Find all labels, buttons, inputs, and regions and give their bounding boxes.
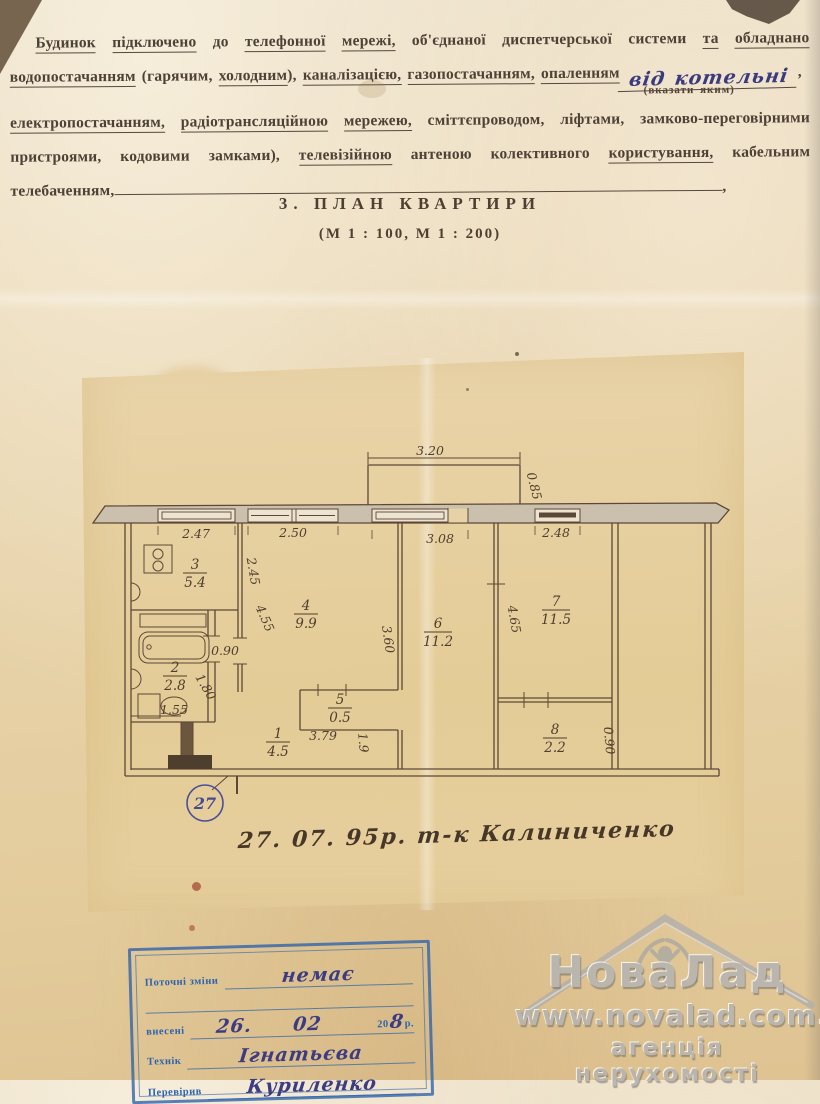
floor-plan-svg: 3.20 0.85 2.47 2.50 3.08 2.48 2.45 4.55 … <box>78 442 748 822</box>
room-label-6: 6 11.2 <box>423 616 453 650</box>
svg-text:27: 27 <box>193 794 216 813</box>
svg-text:4.65: 4.65 <box>504 603 524 634</box>
typed-text: електропостачанням, <box>10 114 165 134</box>
svg-text:3.79: 3.79 <box>309 728 337 743</box>
dimension-ticks <box>158 526 580 539</box>
scanned-apartment-plan-document: { "intro": { "lines": [ {"cls":"just ind… <box>0 0 820 1080</box>
typed-text <box>719 30 735 47</box>
handwritten-heating-value: від котельні <box>618 65 800 92</box>
typed-text <box>165 114 181 131</box>
balcony-outline <box>368 465 520 508</box>
typed-text <box>326 32 342 49</box>
svg-text:9.9: 9.9 <box>295 616 317 632</box>
svg-text:2.2: 2.2 <box>543 740 565 756</box>
svg-text:4.5: 4.5 <box>266 744 288 760</box>
typed-text: мережі, <box>342 32 396 51</box>
shelf-icon <box>140 614 206 627</box>
typed-text: підключено <box>112 33 196 53</box>
typed-text: (гарячим, <box>136 67 219 85</box>
watermark-url: www.novalad.com.ua <box>515 999 820 1032</box>
bathtub-icon <box>139 632 209 663</box>
svg-text:2.48: 2.48 <box>541 525 570 540</box>
section-title: 3. ПЛАН КВАРТИРИ <box>0 194 820 214</box>
typed-text: радіотрансляційною <box>181 113 329 133</box>
typed-text: телефонної <box>245 33 326 53</box>
svg-text:0.5: 0.5 <box>329 710 350 726</box>
typed-text: обладнано <box>735 29 810 49</box>
blank-rule <box>114 178 722 195</box>
plan-dimensions: 3.20 0.85 2.47 2.50 3.08 2.48 2.45 4.55 … <box>160 443 618 755</box>
room-label-2: 2 2.8 <box>163 660 187 694</box>
stamp-label-entered: внесені <box>146 1026 185 1041</box>
typed-text: телевізійною <box>299 146 392 166</box>
svg-text:2.47: 2.47 <box>181 526 210 541</box>
kitchen-fixtures <box>131 545 172 601</box>
typed-text: Будинок <box>35 34 96 53</box>
svg-text:8: 8 <box>551 722 560 738</box>
typed-text <box>401 66 407 83</box>
red-stain-dot <box>189 925 195 931</box>
svg-text:11.2: 11.2 <box>423 634 453 650</box>
typed-text: об'єднаної диспетчерської системи <box>396 30 703 49</box>
svg-text:5.4: 5.4 <box>184 575 205 591</box>
typed-text: сміттєпроводом, ліфтами, замково-перегов… <box>412 109 810 129</box>
svg-text:5: 5 <box>336 692 345 708</box>
typed-text: користування, <box>609 144 714 164</box>
stamp-value-verified: Куриленко <box>246 1073 378 1098</box>
svg-text:3.60: 3.60 <box>379 625 398 655</box>
svg-text:3: 3 <box>191 557 200 573</box>
scale-note: (М 1 : 100, М 1 : 200) <box>0 226 820 243</box>
typed-text: опаленням <box>541 65 620 85</box>
typed-text: до <box>196 33 245 50</box>
plan-walls <box>93 452 729 794</box>
intro-line: пристроями, кодовими замками), телевізій… <box>10 135 810 175</box>
stamp-value-technician: Ігнатьєва <box>238 1043 364 1068</box>
stamp-value-current-changes: немає <box>281 964 356 987</box>
room-label-7: 7 11.5 <box>541 594 571 628</box>
bti-stamp: Поточні зміни немає внесені 26. 02 20 8 … <box>128 940 434 1104</box>
stamp-value-day: 26. <box>215 1016 253 1038</box>
room-label-8: 8 2.2 <box>543 722 567 756</box>
ink-speck <box>515 352 519 356</box>
stamp-year-suffix: р. <box>404 1018 414 1032</box>
typed-text: кабельним <box>713 143 810 161</box>
sink-icon <box>131 583 140 601</box>
typed-text: мережею, <box>344 112 412 131</box>
ink-speck <box>466 388 469 391</box>
fold-crease-horizontal <box>0 288 820 310</box>
watermark-brand: НоваЛад <box>515 947 820 998</box>
intro-line: водопостачанням (гарячим, холодним), кан… <box>10 55 810 95</box>
svg-text:11.5: 11.5 <box>541 612 571 628</box>
watermark-tagline: агенція нерухомості <box>515 1035 820 1087</box>
stamp-year-hand: 8 <box>387 1012 405 1034</box>
room-label-3: 3 5.4 <box>183 557 207 591</box>
stamp-label-current-changes: Поточні зміни <box>145 976 219 992</box>
red-stain-dot <box>192 882 201 891</box>
stamp-label-technician: Технік <box>147 1056 182 1071</box>
svg-text:2.45: 2.45 <box>243 555 263 586</box>
typed-text: водопостачанням <box>10 68 136 88</box>
intro-line: електропостачанням, радіотрансляційною м… <box>10 101 810 141</box>
typed-text <box>96 34 112 51</box>
svg-text:7: 7 <box>552 594 561 610</box>
stamp-line: Куриленко <box>208 1072 417 1100</box>
svg-text:0.90: 0.90 <box>211 643 239 658</box>
svg-text:1.55: 1.55 <box>160 702 188 717</box>
svg-text:4.55: 4.55 <box>252 601 277 633</box>
typed-text: газопостачанням, <box>407 65 535 85</box>
balcony-door-gap <box>448 509 468 523</box>
typed-text: антеною колективного <box>392 145 609 164</box>
washbasin-icon <box>131 669 141 689</box>
stamp-value-month: 02 <box>291 1014 322 1036</box>
room-label-5: 5 0.5 <box>328 692 352 726</box>
stamp-label-verified: Перевірив <box>148 1086 202 1102</box>
intro-line: Будинок підключено до телефонної мережі,… <box>9 21 809 61</box>
entrance-step <box>168 755 212 769</box>
svg-text:6: 6 <box>434 616 443 632</box>
svg-text:4: 4 <box>301 598 311 614</box>
svg-text:2.8: 2.8 <box>163 678 186 694</box>
room-label-4: 4 9.9 <box>294 598 318 632</box>
typed-text: ), <box>287 67 303 84</box>
paper-smudge <box>358 80 386 98</box>
svg-text:0.90: 0.90 <box>601 726 618 755</box>
svg-text:3.20: 3.20 <box>416 443 444 458</box>
svg-text:0.85: 0.85 <box>524 471 545 502</box>
typed-text: каналізацією, <box>303 66 402 86</box>
svg-text:1.9: 1.9 <box>355 732 372 753</box>
typed-text: , <box>722 178 726 195</box>
toilet-tank-icon <box>138 694 160 718</box>
typed-text <box>328 112 344 129</box>
svg-text:2.50: 2.50 <box>278 525 307 540</box>
typed-text: пристроями, кодовими замками), <box>10 147 299 166</box>
intro-text: Будинок підключено до телефонної мережі,… <box>9 21 810 209</box>
typed-text: холодним <box>219 67 288 86</box>
apartment-number-circle: 27 <box>187 785 223 821</box>
agency-watermark: НоваЛад www.novalad.com.ua агенція нерух… <box>515 903 820 1080</box>
room-label-1: 1 4.5 <box>266 726 290 760</box>
svg-text:1: 1 <box>274 726 283 742</box>
stamp-inner-border: Поточні зміни немає внесені 26. 02 20 8 … <box>135 947 427 1097</box>
svg-text:3.08: 3.08 <box>426 531 454 546</box>
svg-text:2: 2 <box>170 660 180 676</box>
typed-text: та <box>703 30 719 49</box>
